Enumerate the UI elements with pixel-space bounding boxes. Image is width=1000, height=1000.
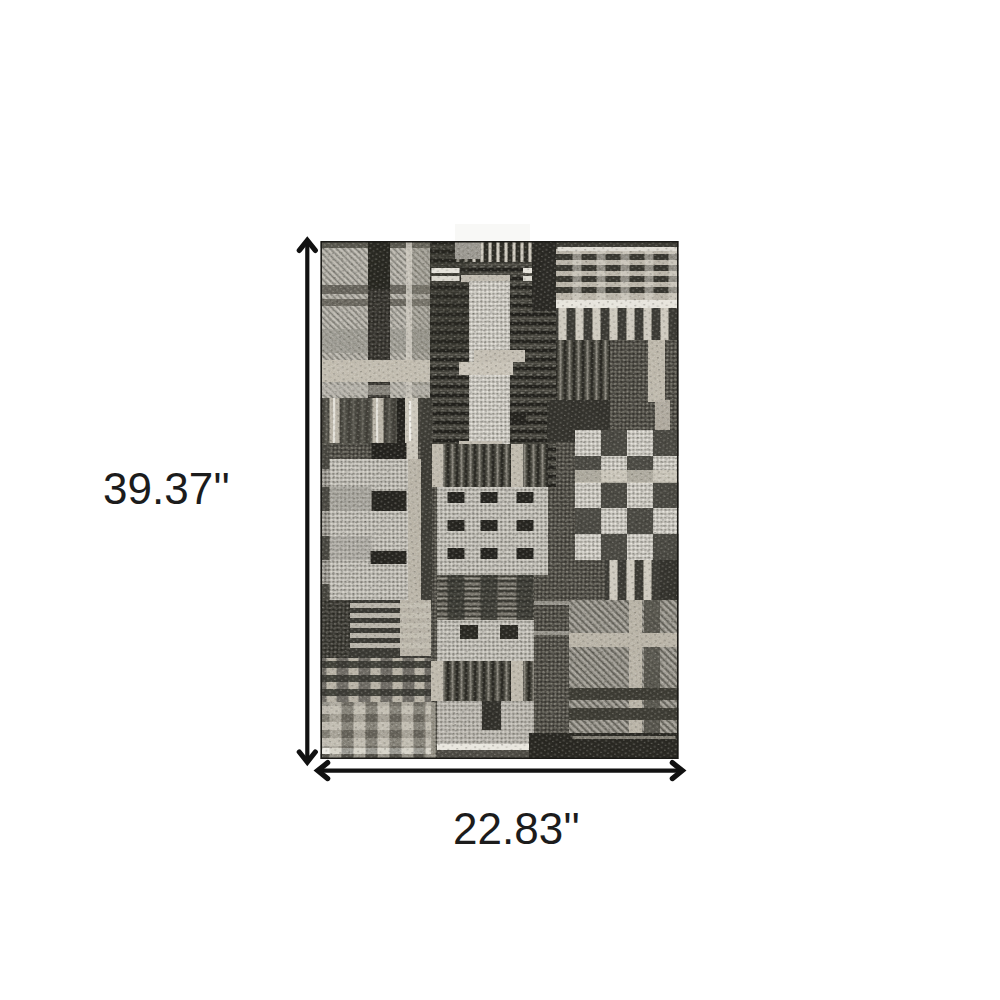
svg-text:22.83'': 22.83'' [453, 804, 580, 853]
svg-text:39.37'': 39.37'' [103, 464, 230, 513]
